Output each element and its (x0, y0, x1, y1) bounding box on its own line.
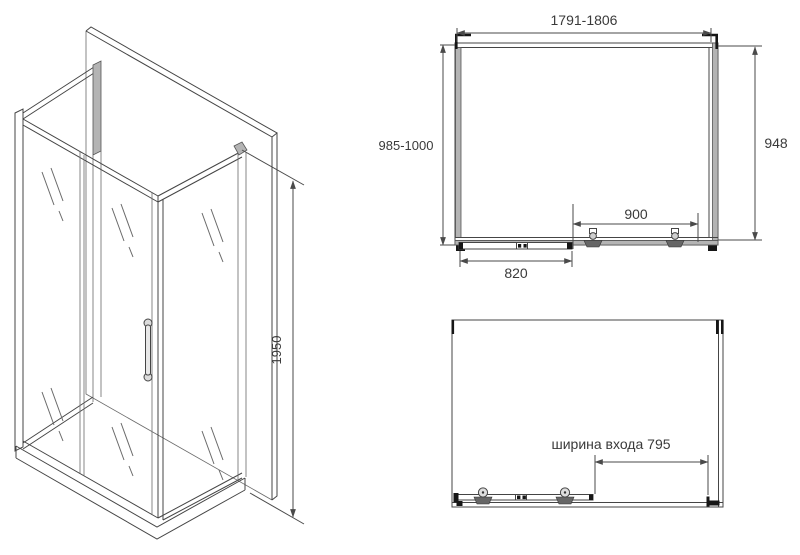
plan-outline (452, 320, 723, 507)
plan-top-right-bracket (721, 320, 724, 334)
back-right-wall-profile (234, 142, 247, 155)
plan-bottom-right-bracket (707, 497, 720, 507)
plan-top-left-bracket (452, 320, 455, 334)
entrance-width-dimension: ширина входа 795 (551, 436, 708, 495)
plan-top-right-bracket (716, 320, 719, 334)
back-left-wall-profile (93, 61, 101, 155)
door-panel-dimension: 820 (460, 251, 572, 281)
front-left-corner-post (15, 109, 23, 451)
door-handle (144, 319, 152, 381)
dim-label-entrance-width: ширина входа 795 (551, 436, 670, 452)
width-dimension: 1791-1806 (457, 12, 711, 42)
top-right-bracket (702, 35, 718, 49)
dim-label-roller-span: 900 (624, 206, 648, 222)
isometric-view: 1950 (15, 27, 304, 539)
enclosure-outline (455, 43, 718, 245)
glass-reflection-mark (42, 388, 63, 441)
rail-end-bracket (708, 246, 717, 252)
plan-view: ширина входа 795 (452, 320, 724, 507)
dim-label-height: 1950 (269, 336, 284, 365)
glass-reflection-mark (202, 427, 223, 480)
right-glass-panel (158, 142, 247, 520)
sliding-door-bar (459, 243, 572, 250)
technical-drawing-sheet: 1950 (0, 0, 800, 555)
right-depth-dimension: 948 (718, 46, 788, 240)
right-wall-profile (713, 43, 719, 245)
dim-label-door-panel: 820 (504, 265, 528, 281)
shower-tray (16, 446, 245, 539)
dim-label-right-depth: 948 (764, 135, 788, 151)
drawing-canvas: 1950 (0, 0, 800, 555)
front-dimension-view: 1791-1806 985-1000 948 900 820 (379, 12, 788, 281)
glass-reflection-mark (42, 168, 63, 221)
left-wall-profile (456, 48, 462, 238)
left-depth-dimension: 985-1000 (379, 45, 455, 245)
height-dimension: 1950 (242, 150, 304, 524)
dim-label-width: 1791-1806 (551, 12, 618, 28)
back-wall-panel (86, 27, 277, 500)
left-glass-panel (15, 61, 101, 451)
glass-reflection-mark (202, 209, 223, 262)
glass-reflection-mark (112, 423, 133, 476)
dim-label-left-depth: 985-1000 (379, 138, 434, 153)
glass-reflection-mark (112, 204, 133, 257)
